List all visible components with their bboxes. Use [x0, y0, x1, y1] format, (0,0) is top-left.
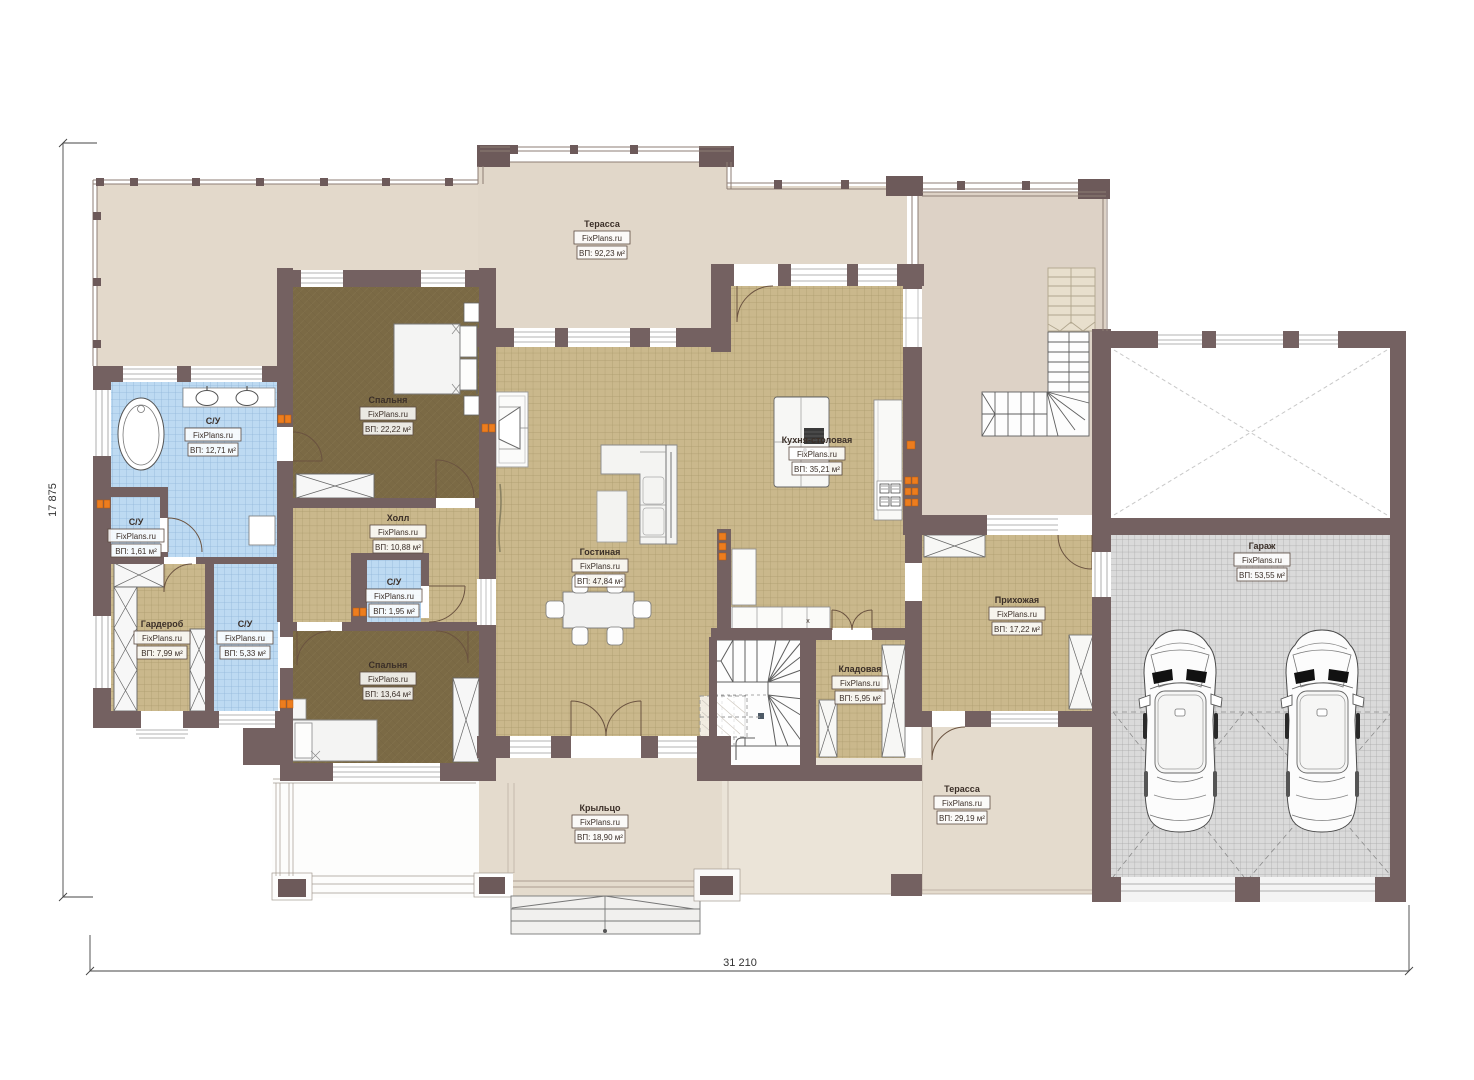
svg-text:FixPlans.ru: FixPlans.ru — [797, 450, 837, 459]
svg-text:FixPlans.ru: FixPlans.ru — [142, 634, 182, 643]
svg-text:Гардероб: Гардероб — [141, 619, 184, 629]
svg-text:ВП: 12,71 м²: ВП: 12,71 м² — [190, 446, 236, 455]
svg-text:ВП: 5,33 м²: ВП: 5,33 м² — [224, 649, 266, 658]
svg-text:FixPlans.ru: FixPlans.ru — [580, 562, 620, 571]
svg-text:Холл: Холл — [387, 513, 410, 523]
svg-text:Терасса: Терасса — [944, 784, 981, 794]
svg-text:Кухня-столовая: Кухня-столовая — [782, 435, 853, 445]
svg-text:Спальня: Спальня — [369, 660, 408, 670]
svg-text:ВП: 92,23 м²: ВП: 92,23 м² — [579, 249, 625, 258]
svg-text:ВП: 35,21 м²: ВП: 35,21 м² — [794, 465, 840, 474]
svg-text:Спальня: Спальня — [369, 395, 408, 405]
svg-text:x: x — [806, 618, 810, 625]
svg-text:FixPlans.ru: FixPlans.ru — [378, 528, 418, 537]
svg-text:Кладовая: Кладовая — [838, 664, 881, 674]
svg-text:FixPlans.ru: FixPlans.ru — [116, 532, 156, 541]
svg-text:ВП: 47,84 м²: ВП: 47,84 м² — [577, 577, 623, 586]
svg-text:С/У: С/У — [206, 416, 221, 426]
svg-text:Прихожая: Прихожая — [995, 595, 1039, 605]
svg-text:ВП: 29,19 м²: ВП: 29,19 м² — [939, 814, 985, 823]
svg-text:Крыльцо: Крыльцо — [580, 803, 621, 813]
svg-text:ВП: 22,22 м²: ВП: 22,22 м² — [365, 425, 411, 434]
svg-text:FixPlans.ru: FixPlans.ru — [580, 818, 620, 827]
svg-text:ВП: 17,22 м²: ВП: 17,22 м² — [994, 625, 1040, 634]
svg-text:Терасса: Терасса — [584, 219, 621, 229]
svg-text:С/У: С/У — [387, 577, 402, 587]
svg-text:Гараж: Гараж — [1249, 541, 1276, 551]
svg-text:С/У: С/У — [129, 517, 144, 527]
svg-text:ВП: 53,55 м²: ВП: 53,55 м² — [1239, 571, 1285, 580]
svg-text:ВП: 10,88 м²: ВП: 10,88 м² — [375, 543, 421, 552]
svg-text:С/У: С/У — [238, 619, 253, 629]
svg-text:17 875: 17 875 — [47, 483, 59, 517]
svg-text:FixPlans.ru: FixPlans.ru — [225, 634, 265, 643]
svg-text:Гостиная: Гостиная — [580, 547, 621, 557]
svg-text:FixPlans.ru: FixPlans.ru — [997, 610, 1037, 619]
svg-text:ВП: 1,61 м²: ВП: 1,61 м² — [115, 547, 157, 556]
svg-text:FixPlans.ru: FixPlans.ru — [1242, 556, 1282, 565]
svg-text:FixPlans.ru: FixPlans.ru — [368, 675, 408, 684]
svg-text:ВП: 1,95 м²: ВП: 1,95 м² — [373, 607, 415, 616]
svg-text:ВП: 18,90 м²: ВП: 18,90 м² — [577, 833, 623, 842]
svg-text:31 210: 31 210 — [723, 957, 757, 969]
svg-text:FixPlans.ru: FixPlans.ru — [942, 799, 982, 808]
svg-text:ВП: 13,64 м²: ВП: 13,64 м² — [365, 690, 411, 699]
svg-text:FixPlans.ru: FixPlans.ru — [368, 410, 408, 419]
svg-text:ВП: 5,95 м²: ВП: 5,95 м² — [839, 694, 881, 703]
svg-text:FixPlans.ru: FixPlans.ru — [840, 679, 880, 688]
svg-text:FixPlans.ru: FixPlans.ru — [374, 592, 414, 601]
svg-text:FixPlans.ru: FixPlans.ru — [193, 431, 233, 440]
svg-text:FixPlans.ru: FixPlans.ru — [582, 234, 622, 243]
svg-text:ВП: 7,99 м²: ВП: 7,99 м² — [141, 649, 183, 658]
